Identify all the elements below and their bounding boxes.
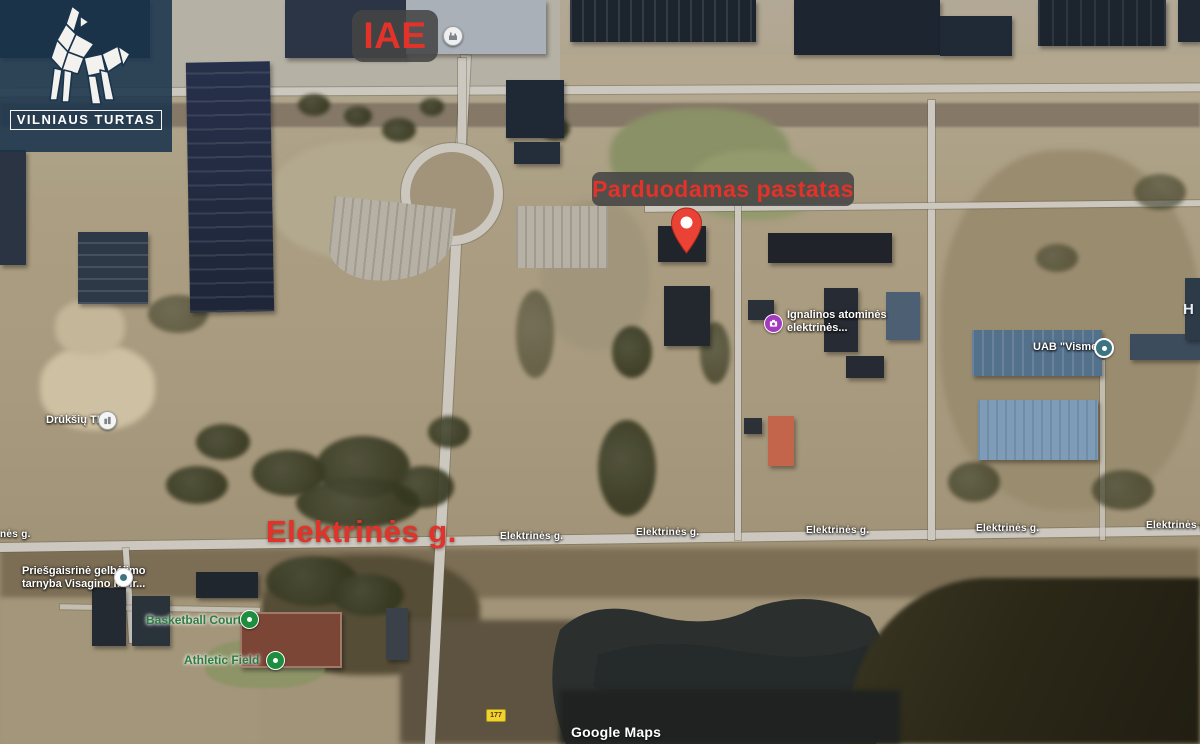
sale-location-pin[interactable]	[670, 207, 703, 255]
iae-callout: IAE	[352, 10, 438, 62]
origami-wolf-icon	[26, 4, 146, 108]
iae-callout-text: IAE	[363, 15, 426, 57]
for-sale-callout: Parduodamas pastatas	[592, 172, 854, 206]
for-sale-callout-text: Parduodamas pastatas	[592, 176, 854, 203]
map-canvas[interactable]: nės g. Elektrinės g. Elektrinės g. Elekt…	[0, 0, 1200, 744]
street-big-label: Elektrinės g.	[266, 514, 457, 550]
annotation-layer: IAE Parduodamas pastatas Elektrinės g.	[0, 0, 1200, 744]
brand-watermark: VILNIAUS TURTAS	[0, 0, 172, 152]
brand-name: VILNIAUS TURTAS	[10, 110, 163, 130]
